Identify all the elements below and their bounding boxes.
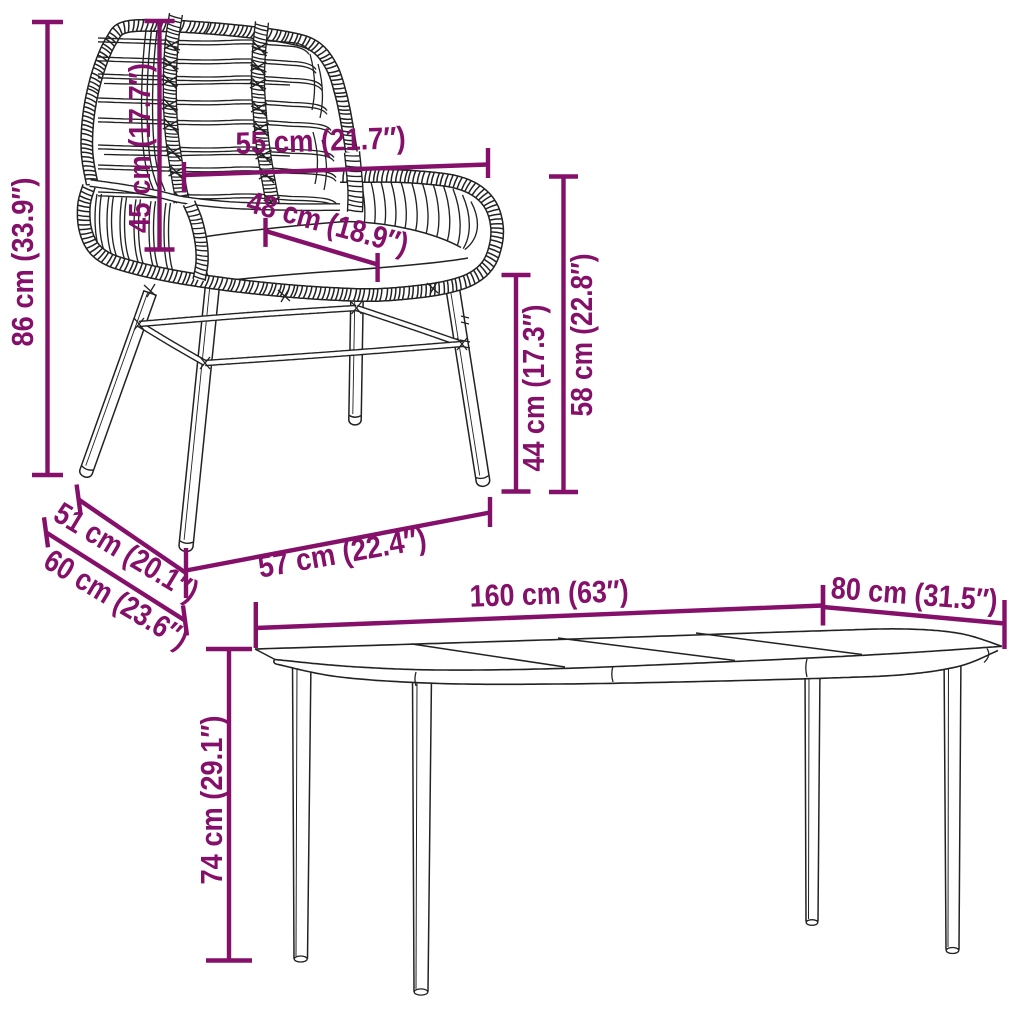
svg-text:55 cm (21.7″): 55 cm (21.7″) <box>235 120 406 161</box>
svg-text:74 cm (29.1″): 74 cm (29.1″) <box>194 716 229 885</box>
svg-text:160 cm (63″): 160 cm (63″) <box>469 573 629 614</box>
svg-text:45 cm (17.7″): 45 cm (17.7″) <box>122 63 157 233</box>
svg-text:44 cm (17.3″): 44 cm (17.3″) <box>516 305 551 472</box>
svg-text:86 cm (33.9″): 86 cm (33.9″) <box>5 178 40 347</box>
svg-text:58 cm (22.8″): 58 cm (22.8″) <box>564 254 599 417</box>
